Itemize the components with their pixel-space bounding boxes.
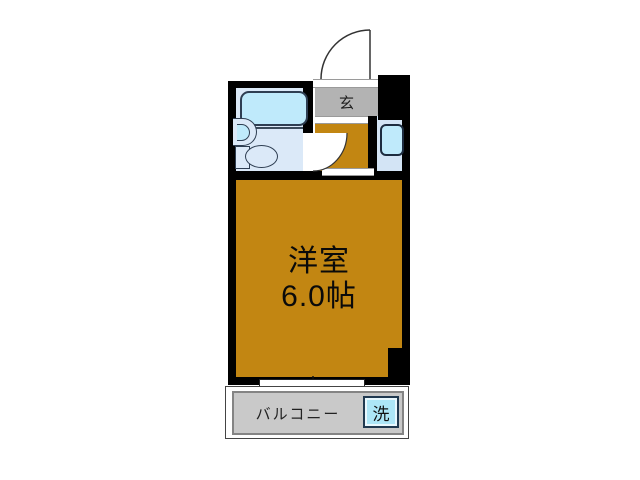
entrance-door-arc: [321, 30, 370, 79]
room-size: 6.0帖: [281, 279, 357, 314]
balcony: バルコニー 洗: [225, 386, 409, 439]
washing-machine-label: 洗: [373, 400, 390, 425]
washing-machine: 洗: [363, 396, 399, 428]
room-name: 洋室: [288, 244, 350, 279]
floor-plan: 玄 洋室 6.0帖 バルコニー 洗: [0, 0, 640, 480]
balcony-panel: バルコニー 洗: [232, 391, 404, 435]
balcony-label: バルコニー: [256, 403, 341, 424]
room-label: 洋室 6.0帖: [236, 180, 402, 377]
bathroom-door-swing: [303, 133, 347, 171]
